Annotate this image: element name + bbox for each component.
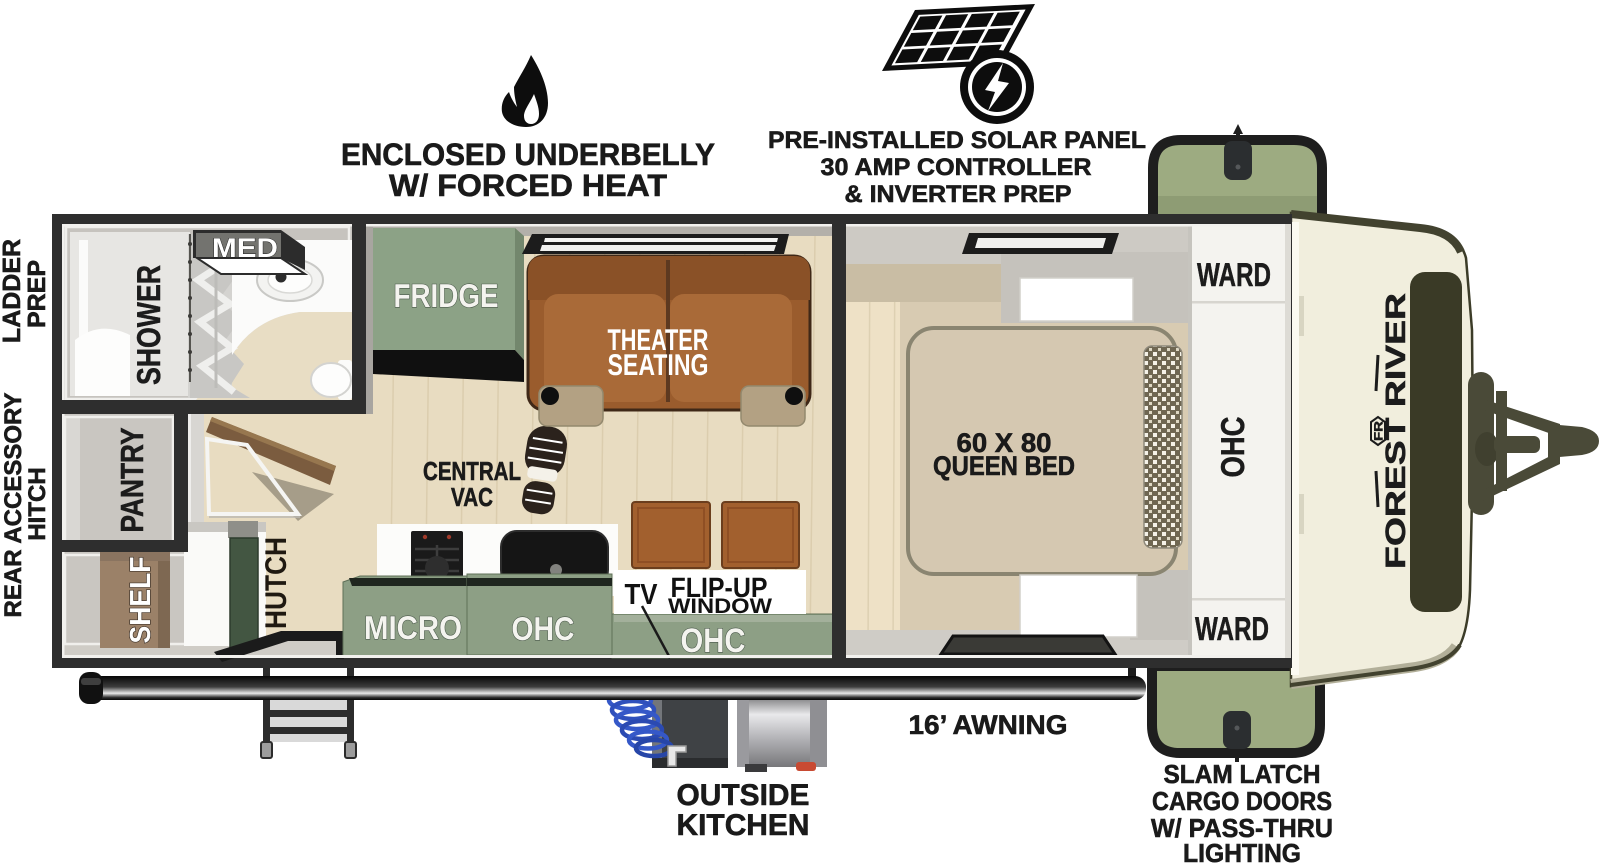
svg-text:PRE-INSTALLED SOLAR PANEL: PRE-INSTALLED SOLAR PANEL bbox=[768, 127, 1146, 154]
svg-text:& INVERTER PREP: & INVERTER PREP bbox=[845, 181, 1072, 208]
svg-text:FRIDGE: FRIDGE bbox=[394, 277, 499, 314]
svg-text:W/ FORCED HEAT: W/ FORCED HEAT bbox=[389, 168, 667, 203]
svg-text:REAR ACCESSORY: REAR ACCESSORY bbox=[0, 393, 27, 618]
svg-text:PANTRY: PANTRY bbox=[114, 428, 150, 533]
svg-text:PREP: PREP bbox=[23, 260, 51, 328]
svg-text:SHELF: SHELF bbox=[125, 557, 157, 644]
svg-text:SEATING: SEATING bbox=[608, 349, 709, 382]
svg-text:VAC: VAC bbox=[451, 482, 493, 512]
svg-text:WARD: WARD bbox=[1197, 256, 1271, 293]
svg-text:HUTCH: HUTCH bbox=[260, 537, 293, 629]
svg-text:KITCHEN: KITCHEN bbox=[677, 809, 810, 842]
svg-text:OHC: OHC bbox=[512, 610, 575, 647]
svg-text:WINDOW: WINDOW bbox=[668, 595, 772, 618]
svg-text:SLAM LATCH: SLAM LATCH bbox=[1164, 759, 1321, 789]
svg-text:OHC: OHC bbox=[1214, 417, 1251, 478]
svg-text:FR: FR bbox=[1372, 421, 1386, 441]
svg-text:ENCLOSED UNDERBELLY: ENCLOSED UNDERBELLY bbox=[341, 137, 715, 172]
svg-text:TV: TV bbox=[625, 579, 659, 611]
svg-text:OHC: OHC bbox=[681, 622, 746, 660]
svg-text:30 AMP CONTROLLER: 30 AMP CONTROLLER bbox=[821, 154, 1092, 181]
svg-text:LIGHTING: LIGHTING bbox=[1183, 838, 1301, 863]
svg-text:MED: MED bbox=[212, 233, 278, 263]
svg-text:SHOWER: SHOWER bbox=[130, 265, 167, 385]
svg-text:MICRO: MICRO bbox=[364, 609, 462, 646]
svg-text:HITCH: HITCH bbox=[24, 467, 51, 540]
svg-text:CARGO DOORS: CARGO DOORS bbox=[1152, 786, 1332, 816]
svg-text:WARD: WARD bbox=[1195, 610, 1269, 647]
svg-text:OUTSIDE: OUTSIDE bbox=[677, 779, 810, 812]
svg-text:16’ AWNING: 16’ AWNING bbox=[909, 710, 1068, 740]
svg-text:QUEEN BED: QUEEN BED bbox=[933, 451, 1075, 481]
